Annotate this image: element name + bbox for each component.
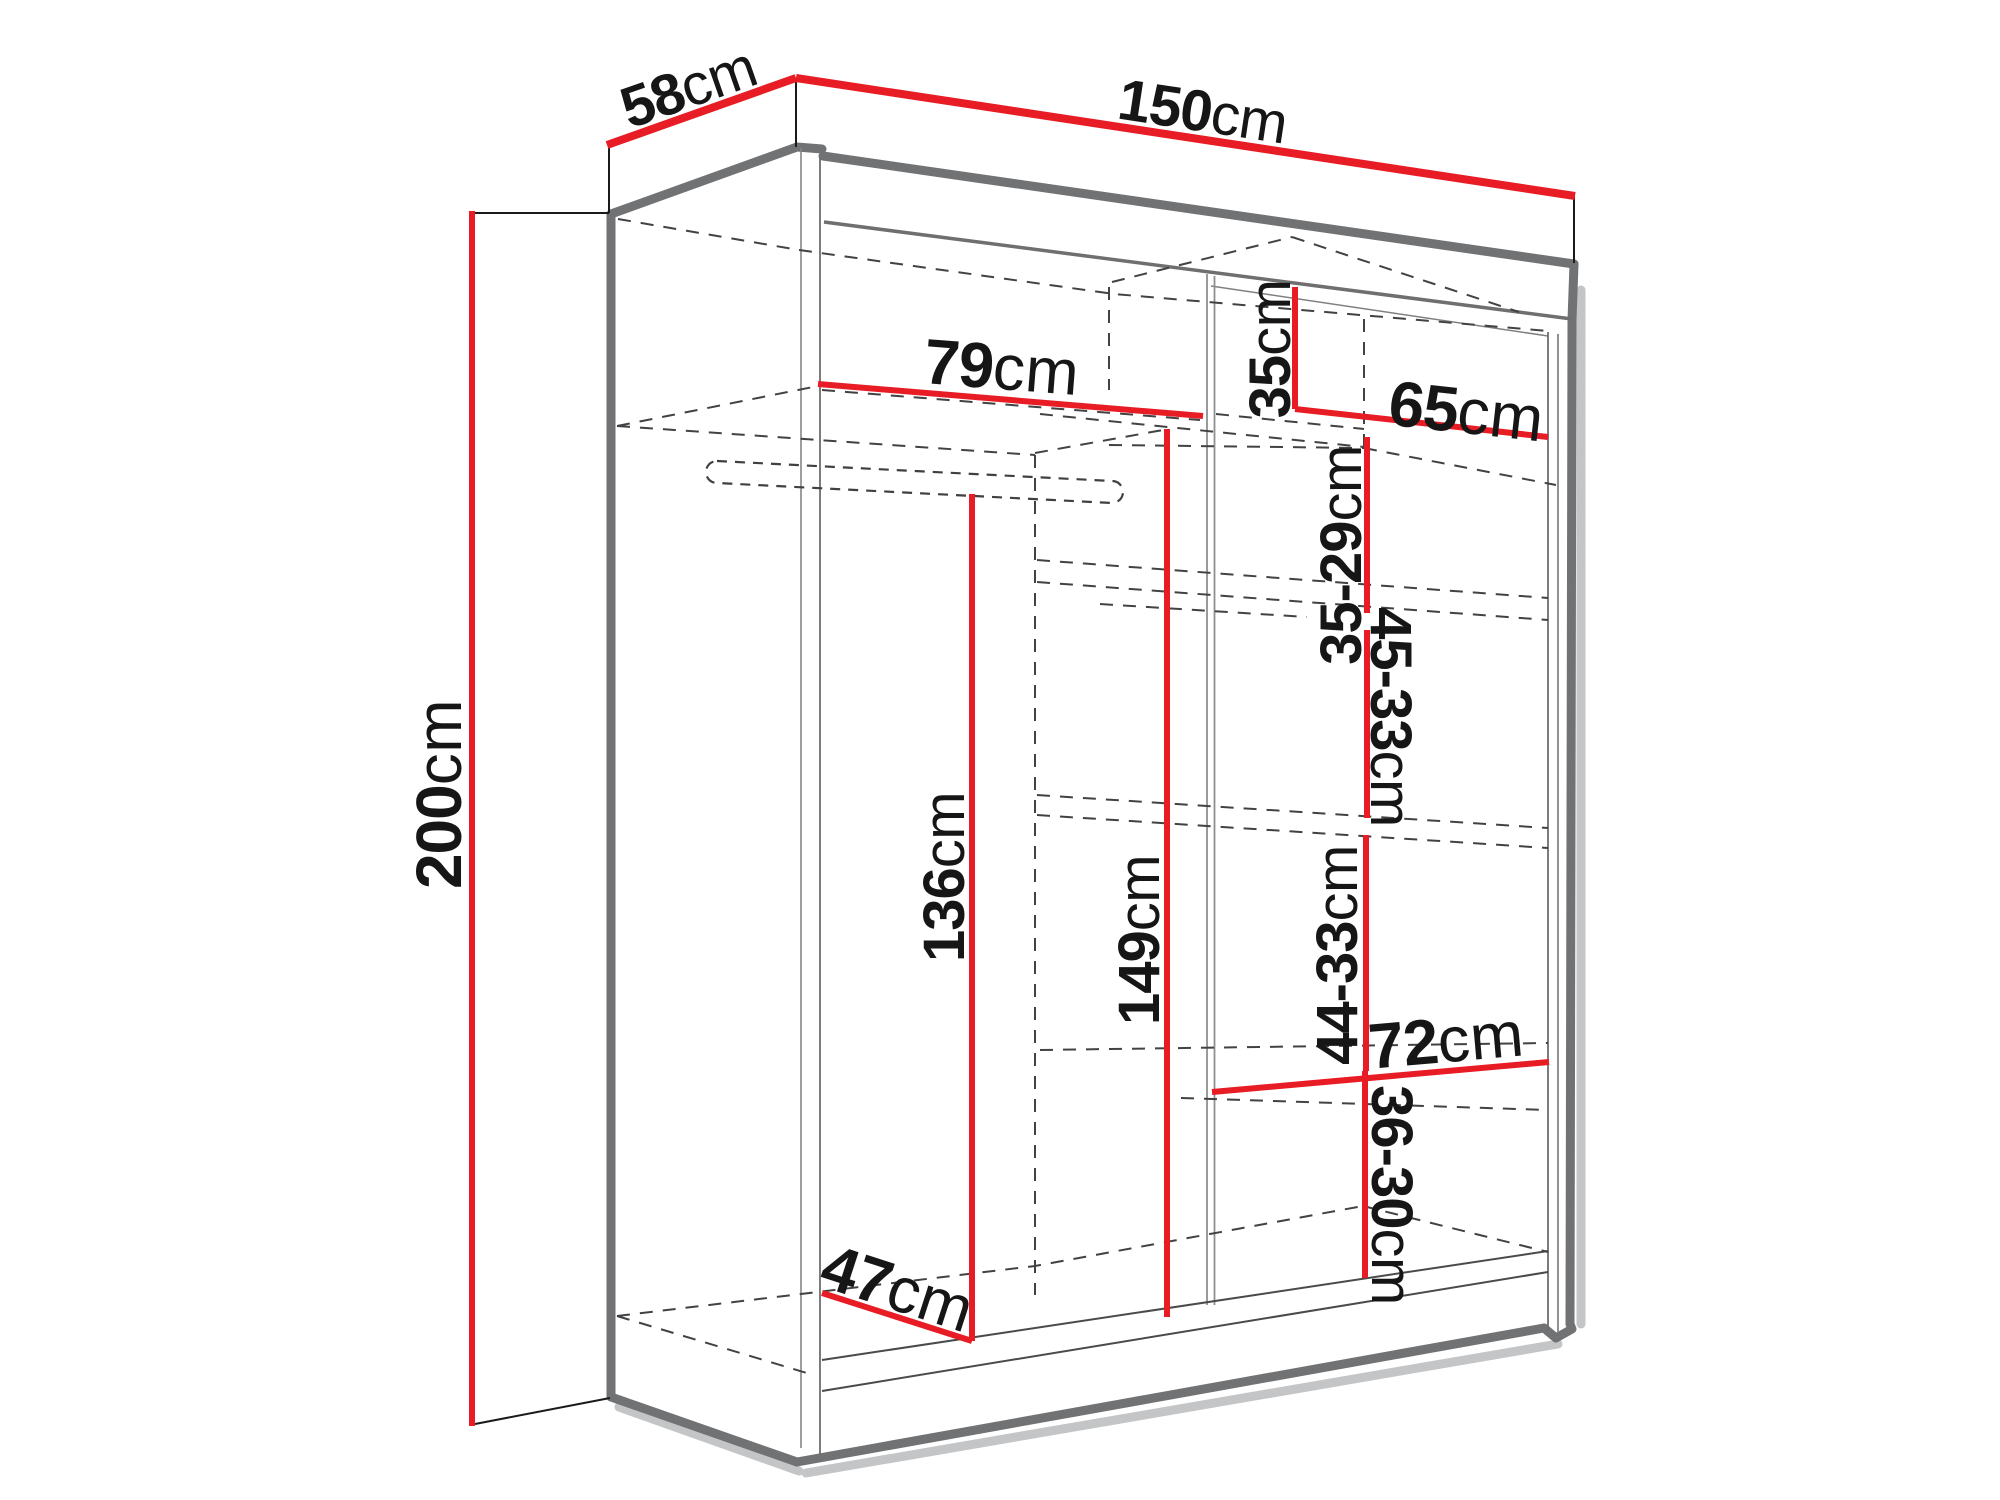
svg-text:35cm: 35cm (1238, 280, 1303, 419)
svg-text:44-33cm: 44-33cm (1305, 845, 1370, 1065)
svg-text:65cm: 65cm (1385, 367, 1547, 456)
svg-text:79cm: 79cm (921, 325, 1082, 409)
svg-text:47cm: 47cm (813, 1230, 983, 1347)
svg-text:149cm: 149cm (1107, 855, 1172, 1025)
svg-text:72cm: 72cm (1365, 997, 1526, 1082)
svg-text:45-33cm: 45-33cm (1358, 607, 1423, 827)
svg-text:136cm: 136cm (912, 792, 977, 962)
svg-text:200cm: 200cm (403, 699, 475, 889)
svg-text:36-30cm: 36-30cm (1359, 1085, 1424, 1305)
svg-text:150cm: 150cm (1114, 67, 1292, 157)
svg-text:58cm: 58cm (612, 34, 765, 141)
